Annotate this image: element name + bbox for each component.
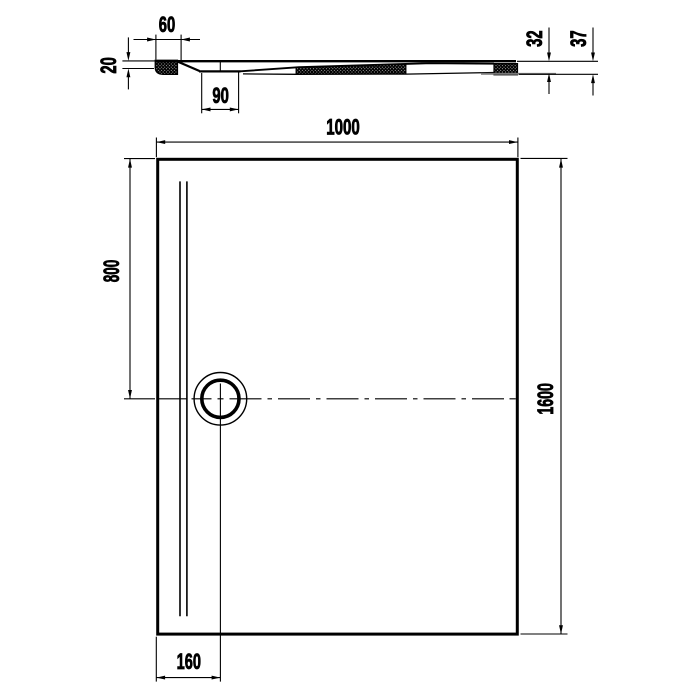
- svg-text:32: 32: [522, 30, 547, 47]
- svg-text:160: 160: [177, 649, 201, 674]
- svg-text:1000: 1000: [326, 115, 360, 140]
- svg-text:37: 37: [566, 30, 591, 47]
- svg-text:90: 90: [212, 83, 229, 108]
- svg-text:1600: 1600: [533, 383, 558, 415]
- svg-text:800: 800: [99, 260, 124, 283]
- svg-text:60: 60: [159, 12, 176, 37]
- svg-text:20: 20: [96, 57, 121, 74]
